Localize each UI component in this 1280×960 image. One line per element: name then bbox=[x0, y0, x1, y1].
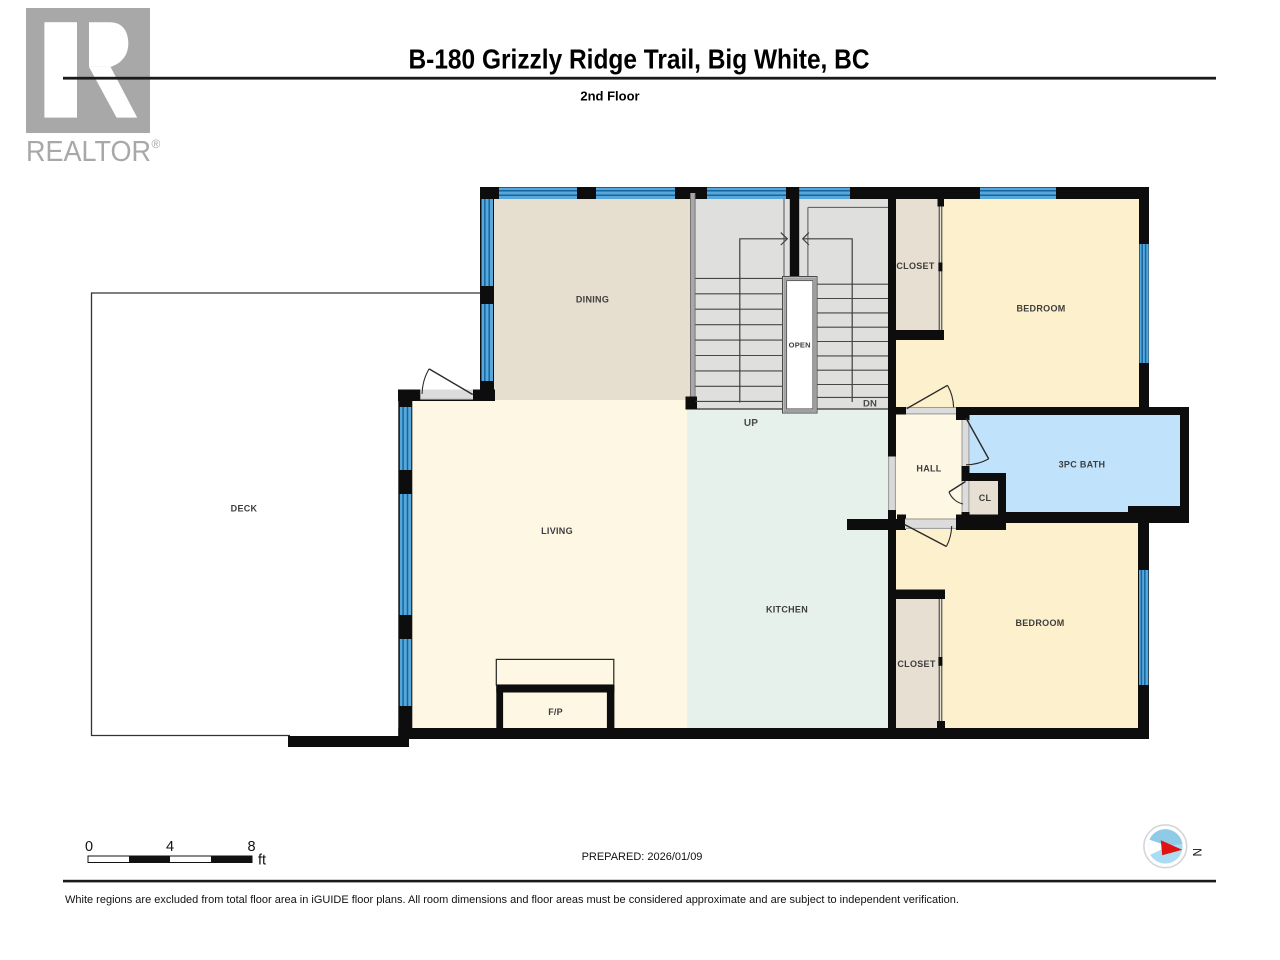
svg-text:HALL: HALL bbox=[916, 463, 941, 473]
svg-text:PREPARED: 2026/01/09: PREPARED: 2026/01/09 bbox=[582, 851, 703, 863]
svg-text:4: 4 bbox=[166, 839, 174, 855]
svg-text:DINING: DINING bbox=[576, 295, 609, 305]
svg-text:3PC BATH: 3PC BATH bbox=[1059, 459, 1106, 469]
svg-text:OPEN: OPEN bbox=[789, 341, 811, 350]
svg-text:KITCHEN: KITCHEN bbox=[766, 605, 808, 615]
svg-text:UP: UP bbox=[744, 418, 758, 429]
svg-text:White regions are excluded fro: White regions are excluded from total fl… bbox=[65, 894, 959, 906]
svg-text:F/P: F/P bbox=[548, 707, 563, 717]
svg-text:CLOSET: CLOSET bbox=[896, 261, 935, 271]
svg-text:LIVING: LIVING bbox=[541, 526, 573, 536]
svg-text:®: ® bbox=[152, 137, 161, 151]
svg-text:0: 0 bbox=[85, 839, 93, 855]
svg-text:N: N bbox=[1190, 848, 1202, 856]
svg-text:BEDROOM: BEDROOM bbox=[1015, 618, 1064, 628]
svg-text:REALTOR: REALTOR bbox=[26, 136, 151, 168]
svg-text:ft: ft bbox=[258, 853, 266, 869]
svg-text:BEDROOM: BEDROOM bbox=[1016, 304, 1065, 314]
svg-text:CL: CL bbox=[979, 493, 992, 503]
svg-text:DN: DN bbox=[863, 399, 877, 410]
svg-text:CLOSET: CLOSET bbox=[897, 659, 936, 669]
svg-text:DECK: DECK bbox=[231, 504, 258, 514]
svg-text:8: 8 bbox=[247, 839, 255, 855]
svg-text:B-180 Grizzly Ridge Trail, Big: B-180 Grizzly Ridge Trail, Big White, BC bbox=[409, 43, 870, 74]
svg-text:2nd Floor: 2nd Floor bbox=[580, 89, 639, 104]
